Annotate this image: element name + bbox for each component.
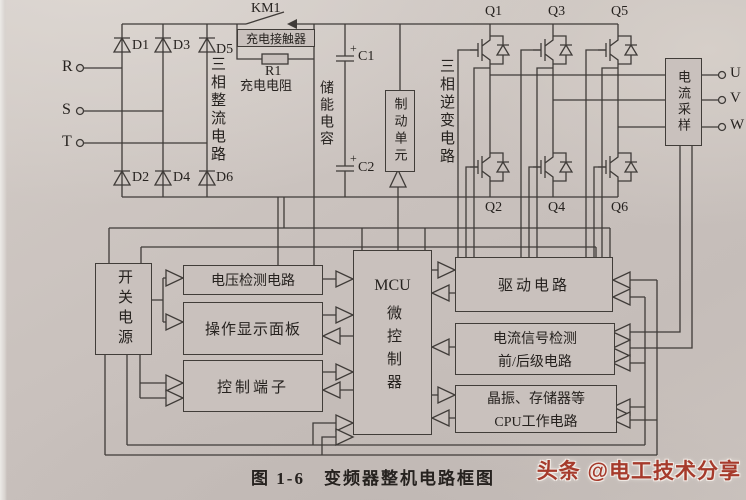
terminal-v [719,97,726,104]
igbt-label-q1: Q1 [485,5,502,20]
input-label-r: R [62,59,73,76]
diode-label-d4: D4 [173,171,190,186]
input-label-t: T [62,134,72,151]
input-label-s: S [62,102,71,119]
charging-resistor-symbol [262,54,288,64]
current-sampling-name: 电流采样 [677,70,690,134]
igbt-q5-symbol [598,32,637,68]
voltage-detect-box: 电压检测电路 [183,265,323,295]
igbt-label-q3: Q3 [548,5,565,20]
terminal-u [719,72,726,79]
diode-label-d6: D6 [216,171,233,186]
brake-feed-arrow [390,170,406,187]
cpu-support-line2: CPU工作电路 [487,411,585,431]
book-page-photo: R S T D1 D3 D5 D2 D4 D6 三相整流电路 KM1 充电接触器… [0,0,746,500]
terminal-t [77,140,84,147]
igbt-label-q4: Q4 [548,201,565,216]
terminal-s [77,108,84,115]
drive-circuit-box: 驱动电路 [455,257,613,312]
diode-label-d1: D1 [132,39,149,54]
output-label-w: W [730,118,744,134]
current-signal-detect-line1: 电流信号检测 [493,328,577,348]
voltage-detect-name: 电压检测电路 [211,270,295,290]
igbt-label-q2: Q2 [485,201,502,216]
mcu-name: 微控制器 [385,305,400,397]
output-label-u: U [730,66,741,82]
contactor-arrow [287,19,297,29]
brake-unit-name: 制动单元 [394,97,407,165]
contactor-name-box: 充电接触器 [237,29,315,47]
dc-link-name: 储能电容 [318,80,332,148]
current-signal-detect-line2: 前/后级电路 [493,351,577,371]
control-terminals-name: 控制端子 [217,376,289,397]
watermark-text: 头条 @电工技术分享 [537,455,741,485]
igbt-label-q6: Q6 [611,201,628,216]
drive-circuit-name: 驱动电路 [498,274,570,295]
cpu-support-line1: 晶振、存储器等 [487,388,585,408]
igbt-q2-symbol [470,149,509,185]
switch-power-name: 开关电源 [116,269,131,349]
resistor-name: 充电电阻 [240,79,292,93]
cap2-ref: C2 [358,161,374,176]
brake-unit-box: 制动单元 [385,90,415,172]
mcu-box: MCU 微控制器 [353,250,432,435]
contactor-ref: KM1 [251,2,281,17]
cap1-polarity: + [350,42,357,55]
igbt-q4-symbol [533,149,572,185]
cpu-support-box: 晶振、存储器等 CPU工作电路 [455,385,617,433]
diode-label-d3: D3 [173,39,190,54]
switch-power-box: 开关电源 [95,263,152,355]
current-signal-detect-box: 电流信号检测 前/后级电路 [455,323,615,375]
cap2-polarity: + [350,152,357,165]
igbt-label-q5: Q5 [611,5,628,20]
mcu-title: MCU [374,277,410,295]
diode-label-d2: D2 [132,171,149,186]
operation-panel-box: 操作显示面板 [183,302,323,355]
rectifier-name: 三相整流电路 [209,56,224,164]
igbt-q3-symbol [533,32,572,68]
igbt-q1-symbol [470,32,509,68]
control-terminals-box: 控制端子 [183,360,323,412]
terminal-w [719,124,726,131]
current-sampling-box: 电流采样 [665,58,702,146]
output-label-v: V [730,91,741,107]
operation-panel-name: 操作显示面板 [205,318,301,339]
terminal-r [77,65,84,72]
contactor-name: 充电接触器 [246,30,306,47]
inverter-name: 三相逆变电路 [438,58,453,166]
cap1-ref: C1 [358,50,374,65]
igbt-q6-symbol [598,149,637,185]
